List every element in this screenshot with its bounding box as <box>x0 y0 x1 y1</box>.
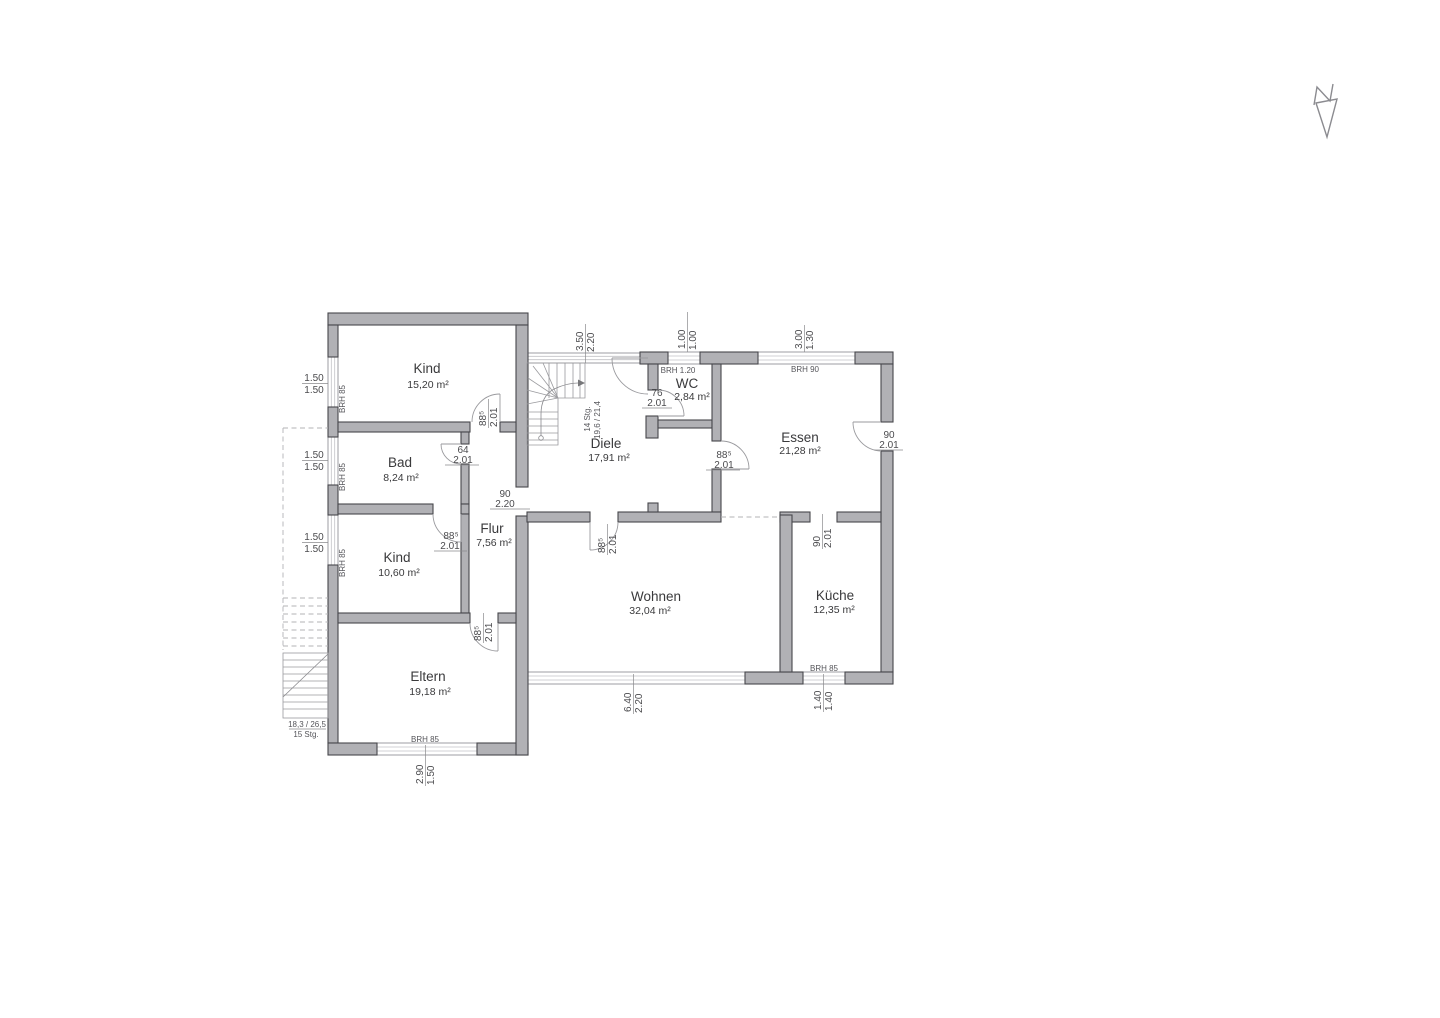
room-area-kind-2: 10,60 m² <box>378 567 420 579</box>
dim-win2-h: 1.50 <box>304 462 324 473</box>
door-essen-exterior <box>853 422 881 451</box>
floor-plan-svg: Kind 15,20 m² Bad 8,24 m² Kind 10,60 m² … <box>0 0 1440 1018</box>
dim-door-kind1-h: 2.01 <box>489 407 500 427</box>
brh-eltern-win: BRH 85 <box>411 735 440 744</box>
dim-door-kueche-w: 90 <box>812 535 823 547</box>
dim-essen-win-w: 3.00 <box>794 329 805 349</box>
room-area-kind-1: 15,20 m² <box>407 379 449 391</box>
dim-door-kueche-h: 2.01 <box>823 528 834 548</box>
room-label-wc: WC <box>676 376 699 391</box>
dim-entry-h: 2.20 <box>586 332 597 352</box>
dim-win1-w: 1.50 <box>304 373 324 384</box>
dim-essen-win-h: 1.30 <box>805 330 816 350</box>
dim-door-essen-ext-h: 2.01 <box>879 440 899 451</box>
brh-win3: BRH 85 <box>338 548 347 577</box>
room-label-essen: Essen <box>781 430 819 445</box>
dim-wohnen-win-h: 2.20 <box>634 693 645 713</box>
room-area-wohnen: 32,04 m² <box>629 605 671 617</box>
stair-label-steps: 14 Stg. <box>583 406 592 431</box>
dim-wc-win-h: 1.00 <box>688 330 699 350</box>
room-label-bad: Bad <box>388 455 412 470</box>
dim-eltern-win-h: 1.50 <box>426 765 437 785</box>
dimension-labels-rotated: 88⁵ 2.01 88⁵ 2.01 88⁵ 2.01 90 2.01 3.50 … <box>338 329 835 785</box>
dim-door-wohnen-w: 88⁵ <box>597 538 608 553</box>
stair-direction-arrow <box>578 380 585 387</box>
ext-stair-steps: 15 Stg. <box>293 730 318 739</box>
room-area-eltern: 19,18 m² <box>409 686 451 698</box>
brh-win1: BRH 85 <box>338 384 347 413</box>
brh-essen-win: BRH 90 <box>791 365 820 374</box>
window-kind1 <box>328 357 338 407</box>
room-area-flur: 7,56 m² <box>476 537 512 549</box>
room-area-kueche: 12,35 m² <box>813 604 855 616</box>
room-area-wc: 2,84 m² <box>674 391 710 403</box>
dim-wc-win-w: 1.00 <box>677 329 688 349</box>
dim-door-kind1-w: 88⁵ <box>478 411 489 426</box>
window-eltern <box>377 743 477 755</box>
brh-kueche-win: BRH 85 <box>810 664 839 673</box>
window-kind2 <box>328 515 338 565</box>
ext-stair-rise-run: 18,3 / 26,5 <box>288 720 326 729</box>
window-wohnen-sliding <box>528 672 745 684</box>
dim-win2-w: 1.50 <box>304 450 324 461</box>
room-label-kind-1: Kind <box>413 361 440 376</box>
room-label-flur: Flur <box>480 521 504 536</box>
dim-door-eltern-h: 2.01 <box>484 622 495 642</box>
room-area-diele: 17,91 m² <box>588 452 630 464</box>
dim-wohnen-win-w: 6.40 <box>623 692 634 712</box>
dim-kueche-win-w: 1.40 <box>813 690 824 710</box>
dim-door-wohnen-h: 2.01 <box>608 534 619 554</box>
dim-door-essen-h: 2.01 <box>714 460 734 471</box>
north-arrow-icon <box>1314 84 1337 137</box>
room-label-kueche: Küche <box>816 588 854 603</box>
room-area-essen: 21,28 m² <box>779 445 821 457</box>
window-essen <box>758 352 855 364</box>
dim-win3-h: 1.50 <box>304 544 324 555</box>
room-label-kind-2: Kind <box>383 550 410 565</box>
room-label-wohnen: Wohnen <box>631 589 681 604</box>
room-area-bad: 8,24 m² <box>383 472 419 484</box>
brh-win2: BRH 85 <box>338 462 347 491</box>
dim-eltern-win-w: 2.90 <box>415 764 426 784</box>
stair-label-rise-run: 19,6 / 21,4 <box>593 401 602 439</box>
dim-door-eltern-w: 88⁵ <box>473 626 484 641</box>
dim-entry-w: 3.50 <box>575 331 586 351</box>
internal-stair <box>527 363 585 445</box>
dim-win1-h: 1.50 <box>304 385 324 396</box>
dim-door-wc-h: 2.01 <box>647 398 667 409</box>
dim-pass-flur-h: 2.20 <box>495 499 515 510</box>
room-label-eltern: Eltern <box>410 669 445 684</box>
dim-kueche-win-h: 1.40 <box>824 691 835 711</box>
window-wc <box>668 352 700 364</box>
window-bad <box>328 437 338 485</box>
brh-wc-win: BRH 1.20 <box>661 366 696 375</box>
dim-door-kind2-h: 2.01 <box>440 541 460 552</box>
dim-door-bad-h: 2.01 <box>453 455 473 466</box>
dim-win3-w: 1.50 <box>304 532 324 543</box>
window-kueche <box>803 672 845 684</box>
